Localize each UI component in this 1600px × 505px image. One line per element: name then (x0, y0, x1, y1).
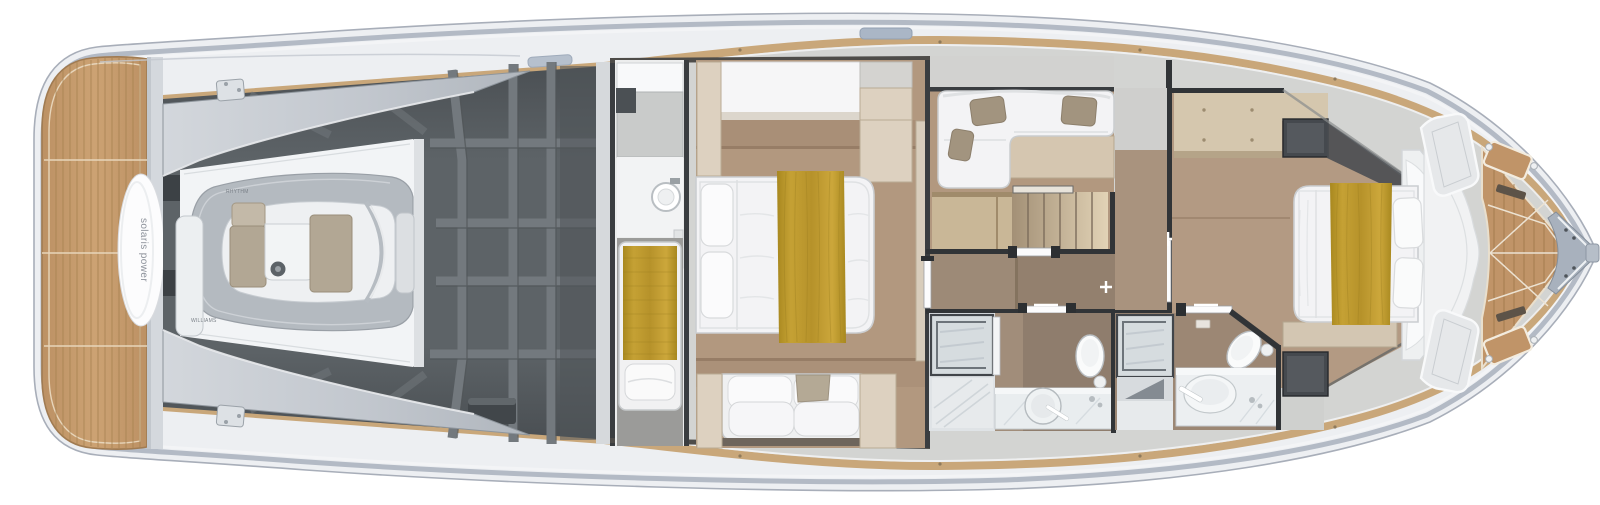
svg-text:solaris power: solaris power (138, 218, 149, 282)
svg-text:RHYTHM: RHYTHM (226, 189, 249, 195)
svg-text:WILLIAMS: WILLIAMS (191, 318, 217, 324)
